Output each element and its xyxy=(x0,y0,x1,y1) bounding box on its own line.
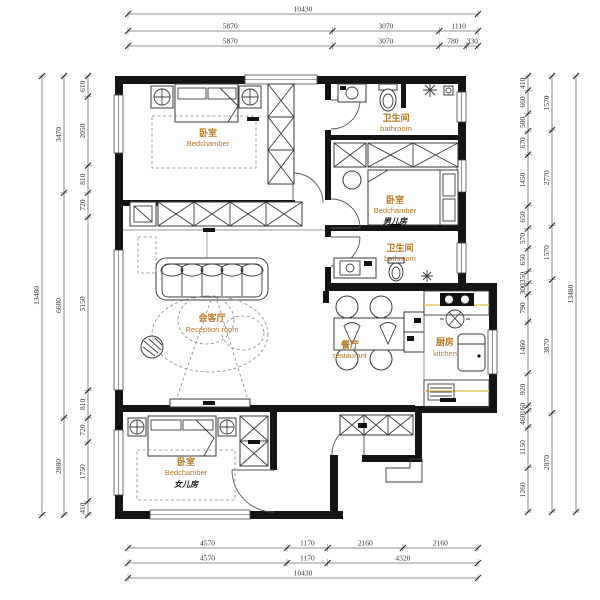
label-girl-cn: 卧室 xyxy=(177,456,195,467)
dimension-strip-right-groups: 15702770157038702870 xyxy=(542,73,556,515)
dimension-value: 2770 xyxy=(542,170,551,185)
dimension-value: 810 xyxy=(78,398,87,410)
dimension-value: 410 xyxy=(78,502,87,514)
dimension-value: 570 xyxy=(518,233,527,245)
dimension-value: 5870 xyxy=(223,37,238,46)
door-arc-master xyxy=(293,173,323,203)
dimension-strip-right-segments: 4106605006701450650570650350300790146092… xyxy=(518,73,532,515)
rug-outline xyxy=(152,296,268,372)
dimension-value: 1450 xyxy=(518,172,527,187)
dimension-value: 4570 xyxy=(200,539,215,548)
dimension-value: 460 xyxy=(518,413,527,425)
dimension-value: 300 xyxy=(518,283,527,295)
label-reception-en: Reception room xyxy=(186,325,239,334)
dimension-value: 3870 xyxy=(542,339,551,354)
dimension-strip-right-overall: 13480 xyxy=(566,73,580,515)
dimension-value: 10430 xyxy=(294,5,313,14)
label-master-en: Bedchamber xyxy=(187,139,230,148)
boy-bedroom-furniture xyxy=(334,143,458,228)
label-boy-sub: 男儿房 xyxy=(383,217,408,226)
dimension-value: 2160 xyxy=(433,539,448,548)
dimension-value: 920 xyxy=(518,384,527,396)
dimension-strip-top-row2: 587030701110 xyxy=(125,22,481,36)
dimension-value: 6680 xyxy=(54,298,63,313)
door-arc-boy xyxy=(331,199,360,228)
chair xyxy=(336,296,358,318)
dimension-value: 1460 xyxy=(518,340,527,355)
side-table xyxy=(141,336,163,358)
bed xyxy=(368,170,458,225)
label-bath-mid-cn: 卫生间 xyxy=(386,242,413,253)
dimension-value: 410 xyxy=(518,77,527,89)
dimension-value: 650 xyxy=(518,211,527,223)
dimension-strip-left-overall: 13480 xyxy=(32,73,46,518)
dimension-value: 1150 xyxy=(518,440,527,455)
dimension-value: 1170 xyxy=(300,539,315,548)
dimension-value: 2160 xyxy=(358,539,373,548)
dimension-value: 160 xyxy=(518,402,527,414)
label-dining-en: restaurant xyxy=(333,351,368,360)
dimension-value: 720 xyxy=(78,424,87,436)
dimension-value: 780 xyxy=(447,37,459,46)
girl-bedroom-furniture xyxy=(128,416,268,500)
dimension-strip-bottom-overall: 10430 xyxy=(125,569,481,583)
shower-icon xyxy=(423,83,437,97)
dimension-value: 13480 xyxy=(32,286,41,305)
door-arc-girl xyxy=(232,470,274,512)
dimension-value: 810 xyxy=(78,173,87,185)
dimension-value: 13480 xyxy=(566,284,575,303)
dimension-value: 1570 xyxy=(542,245,551,260)
dimension-value: 2050 xyxy=(78,123,87,138)
master-bedroom-furniture xyxy=(151,84,294,184)
dimension-value: 650 xyxy=(518,254,527,266)
floor-drain xyxy=(444,86,453,95)
dimension-strip-left-groups: 347066802880 xyxy=(54,73,68,518)
dimension-strip-top-row3: 58703070780330 xyxy=(125,37,481,51)
label-bath-mid-en: bathroom xyxy=(384,254,416,263)
dimension-value: 5870 xyxy=(223,22,238,31)
label-bath-top-cn: 卫生间 xyxy=(382,112,409,123)
dimension-value: 790 xyxy=(518,302,527,314)
door-arc-bath-top xyxy=(331,100,360,129)
dimension-value: 3070 xyxy=(378,22,393,31)
entry-cabinets xyxy=(340,415,413,435)
chair xyxy=(370,296,392,318)
dimension-value: 4320 xyxy=(395,554,410,563)
toilet xyxy=(389,263,403,281)
dimension-value: 670 xyxy=(518,137,527,149)
label-girl-sub: 女儿房 xyxy=(174,480,199,489)
chair xyxy=(370,348,392,370)
dimension-value: 4570 xyxy=(200,554,215,563)
dimension-value: 10430 xyxy=(294,569,313,578)
label-reception-cn: 会客厅 xyxy=(198,312,225,323)
dimension-strip-top-overall: 10430 xyxy=(125,5,481,19)
hallway-cabinets xyxy=(123,202,325,258)
dimension-value: 1170 xyxy=(300,554,315,563)
bathroom-top-fixtures xyxy=(338,83,453,111)
dimension-value: 1750 xyxy=(78,464,87,479)
shower-icon xyxy=(421,270,433,282)
label-boy-cn: 卧室 xyxy=(386,194,404,205)
dimension-value: 330 xyxy=(467,37,479,46)
label-boy-en: Bedchamber xyxy=(374,206,417,215)
dimension-value: 500 xyxy=(518,117,527,129)
dimension-value: 720 xyxy=(78,199,87,211)
floorplan-canvas: 10430 587030701110 58703070780330 457011… xyxy=(0,0,600,600)
dimension-strip-bottom-row2: 457011704320 xyxy=(125,554,481,568)
dimension-value: 1570 xyxy=(542,95,551,110)
floor-plan-svg: 10430 587030701110 58703070780330 457011… xyxy=(0,0,600,600)
dimension-value: 5150 xyxy=(78,296,87,311)
dimension-value: 610 xyxy=(78,80,87,92)
label-master-cn: 卧室 xyxy=(199,127,217,138)
label-kitchen-cn: 厨房 xyxy=(436,336,454,347)
dimension-value: 3070 xyxy=(378,37,393,46)
dimension-value: 350 xyxy=(518,272,527,284)
dimension-strip-bottom-row1: 4570117021602160 xyxy=(125,539,481,553)
dimension-value: 2870 xyxy=(542,455,551,470)
dimension-value: 2880 xyxy=(54,459,63,474)
dimension-value: 660 xyxy=(518,96,527,108)
label-kitchen-en: kitchen xyxy=(433,349,457,358)
bed xyxy=(175,84,238,122)
fridge xyxy=(458,334,485,371)
dimension-strip-left-segments: 610205081072051508107201750410 xyxy=(78,73,92,518)
dimension-value: 1260 xyxy=(518,482,527,497)
label-girl-en: Bedchamber xyxy=(165,468,208,477)
dimension-value: 1110 xyxy=(451,22,466,31)
label-bath-top-en: bathroom xyxy=(380,124,412,133)
dimension-value: 3470 xyxy=(54,127,63,142)
label-dining-cn: 餐厅 xyxy=(340,339,359,350)
entry-step xyxy=(386,459,422,482)
chair xyxy=(343,171,361,189)
